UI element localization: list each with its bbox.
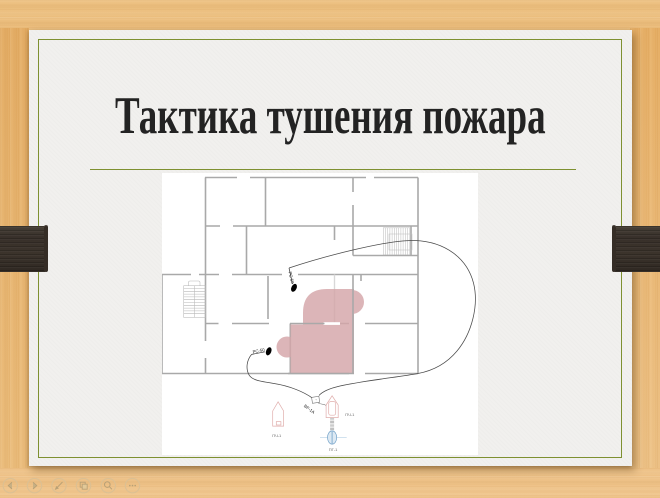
svg-text:ВР-1А: ВР-1А [303,403,316,415]
svg-text:ПЧ-1: ПЧ-1 [272,433,282,438]
svg-text:РС-50: РС-50 [288,271,296,285]
svg-text:ПЧ-1: ПЧ-1 [345,412,355,417]
svg-text:РС-50: РС-50 [252,347,266,355]
svg-text:ПГ-1: ПГ-1 [329,447,338,452]
